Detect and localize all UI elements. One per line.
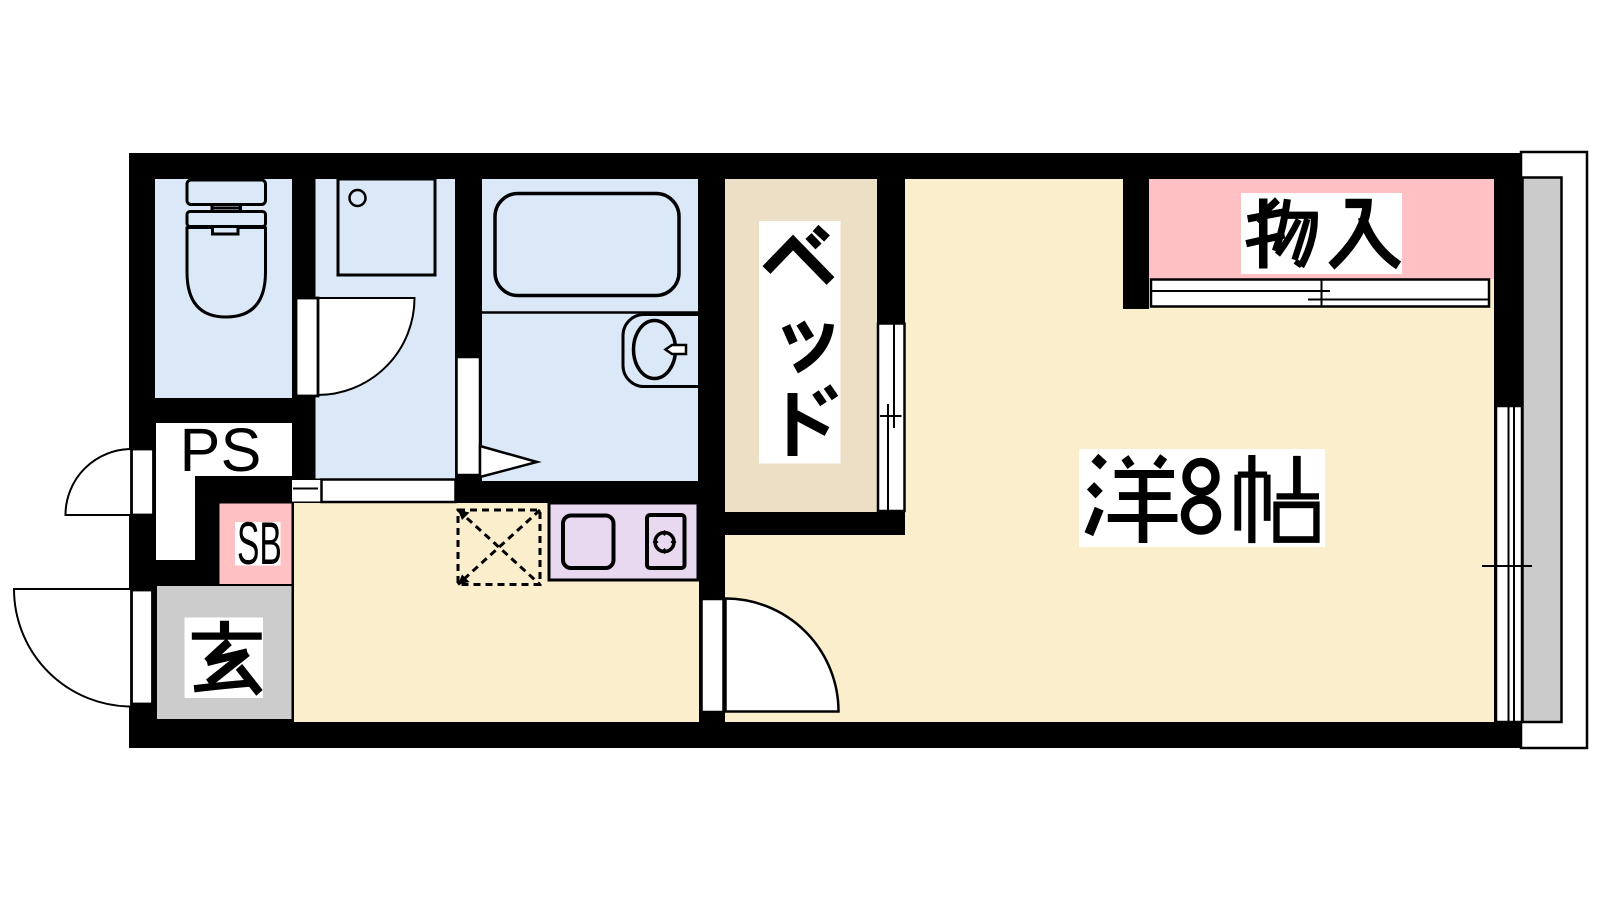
svg-text:P: P xyxy=(180,416,221,484)
svg-text:SB: SB xyxy=(237,511,282,578)
svg-text:S: S xyxy=(221,416,262,484)
